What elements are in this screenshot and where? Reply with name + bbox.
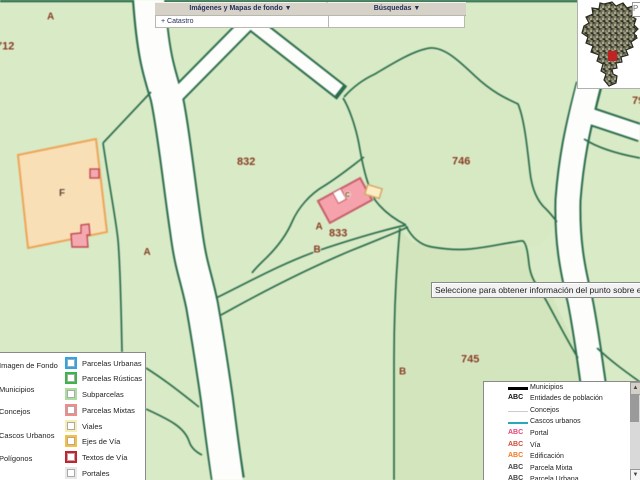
svg-text:B: B: [399, 367, 406, 378]
svg-text:79: 79: [632, 95, 640, 107]
svg-text:746: 746: [452, 156, 470, 168]
svg-text:A: A: [47, 12, 54, 23]
svg-text:745: 745: [461, 354, 479, 366]
svg-text:833: 833: [329, 228, 347, 240]
svg-text:832: 832: [237, 156, 255, 168]
svg-text:A: A: [316, 222, 323, 233]
svg-text:B: B: [314, 245, 321, 256]
svg-text:F: F: [59, 188, 65, 199]
svg-text:A: A: [144, 247, 151, 258]
svg-text:C: C: [345, 192, 350, 199]
svg-text:712: 712: [0, 41, 14, 53]
